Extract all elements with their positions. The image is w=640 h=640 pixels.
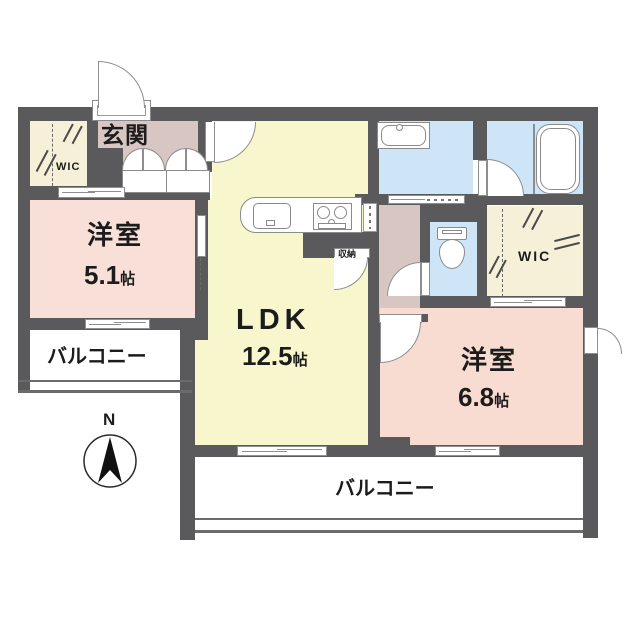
storage-label: 収納 [338, 250, 356, 259]
vanity-faucet [396, 124, 403, 131]
ldk-window [237, 446, 327, 456]
wall [477, 205, 487, 298]
ldk-size: 12.5帖 [242, 343, 308, 369]
ldk-size-value: 12.5 [242, 341, 293, 371]
bedroom-small-floor [30, 198, 195, 318]
bathroom-door-opening [478, 160, 487, 196]
wic-right-dashed-line [502, 209, 504, 297]
bathtub-inner [540, 128, 576, 190]
balcony-railing [195, 530, 583, 533]
shoe-closet-divider [166, 171, 167, 192]
wall [368, 322, 380, 445]
wic-left-label: WIC [56, 162, 80, 173]
wall [583, 107, 598, 538]
wall [473, 121, 487, 160]
bedroom-large-size-unit: 帖 [494, 393, 509, 410]
bedroom-small-size: 5.1帖 [84, 262, 135, 288]
wall [87, 121, 98, 148]
stove-burner [334, 206, 347, 219]
compass-north-label: N [103, 411, 115, 428]
balcony-left-label: バルコニー [47, 347, 147, 367]
kitchen-sink-drain [266, 220, 275, 226]
bathroom-divider [533, 124, 535, 194]
balcony-bottom-label: バルコニー [335, 479, 435, 499]
wall [18, 107, 30, 392]
bedroom-small-size-unit: 帖 [120, 271, 135, 288]
bedroom-large-size: 6.8帖 [458, 384, 509, 410]
wall [180, 318, 195, 540]
entrance-door-swing [98, 61, 145, 108]
stove-grill [318, 223, 346, 229]
genkan-label: 玄関 [101, 124, 149, 147]
compass-icon [80, 430, 140, 490]
bedroom-large-window [435, 446, 500, 456]
bedroom-small-size-value: 5.1 [84, 260, 120, 290]
balcony-railing [18, 380, 192, 382]
side-door-swing [598, 328, 622, 354]
toilet-door-opening [421, 262, 430, 296]
wic-right-label: WIC [518, 249, 551, 263]
hallway-floor [379, 202, 420, 314]
bedroom-ldk-door-pocket [200, 258, 202, 290]
balcony-railing [195, 518, 583, 520]
ldk-label: LDK [236, 306, 311, 335]
vanity-sink [381, 125, 426, 146]
bedroom-large-label: 洋室 [461, 347, 517, 373]
floor-plan: 玄関 WIC 洋室 5.1帖 LDK 12.5帖 洋室 6.8帖 WIC 収納 … [0, 0, 640, 640]
shoe-closet [122, 170, 210, 193]
balcony-railing [18, 390, 192, 393]
ldk-hallway-opening [363, 203, 377, 232]
side-door-panel [584, 327, 598, 354]
bedroom-large-size-value: 6.8 [458, 382, 494, 412]
ldk-size-unit: 帖 [293, 352, 308, 369]
bedroom-small-label: 洋室 [87, 222, 143, 248]
washroom-sliding-door [388, 195, 465, 204]
bedroom-small-window [85, 319, 150, 329]
bedroom-ldk-sliding-door [197, 215, 206, 257]
wic-right-sliding-door [490, 297, 566, 307]
wic-left-sliding-door [58, 187, 125, 198]
stove-burner [317, 206, 330, 219]
